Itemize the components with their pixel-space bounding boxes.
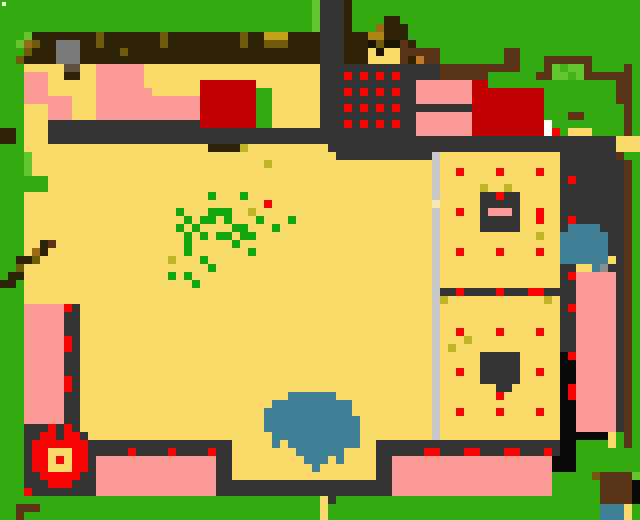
tile-amber: [376, 24, 384, 32]
tile-sand: [144, 72, 320, 80]
tile-grass: [0, 120, 24, 128]
tile-grass: [632, 504, 640, 512]
tile-red-building: [200, 104, 256, 112]
tile-tree-canopy: [288, 32, 320, 40]
tile-sand: [616, 136, 640, 144]
tile-dark-path: [616, 384, 624, 392]
tile-sand: [48, 80, 96, 88]
tile-dark-path: [24, 432, 40, 440]
tile-grass: [0, 72, 24, 80]
tile-dark-path: [480, 224, 520, 232]
tile-gray-path: [432, 376, 440, 384]
tile-trunk-fence: [624, 352, 632, 360]
tile-red-marker: [64, 376, 72, 384]
tile-sprout: [200, 232, 208, 240]
tile-sand: [576, 264, 592, 272]
tile-dark-path: [320, 16, 344, 24]
tile-sand: [248, 144, 328, 152]
tile-sand: [80, 352, 432, 360]
tile-dark-path: [88, 456, 96, 464]
tile-sand: [464, 328, 496, 336]
tile-sand: [48, 448, 72, 456]
tile-grass: [632, 512, 640, 520]
tile-grass: [0, 456, 24, 464]
tile-pink-building: [24, 344, 64, 352]
tile-grass: [632, 288, 640, 296]
tile-red-marker: [56, 456, 64, 464]
tile-red-marker: [536, 208, 544, 216]
tile-sprout: [232, 240, 240, 248]
tile-sand: [360, 424, 432, 432]
tile-grass: [0, 384, 24, 392]
tile-black-path: [560, 408, 576, 416]
tile-pond-water: [312, 464, 320, 472]
tile-black-path: [560, 432, 608, 440]
tile-sand: [72, 96, 96, 104]
tile-sand: [24, 104, 48, 112]
tile-sand: [624, 512, 632, 520]
tile-trunk-fence: [624, 168, 632, 176]
tile-tree-canopy: [24, 56, 56, 64]
tile-sand: [232, 440, 272, 448]
tile-rock: [56, 40, 80, 48]
tile-sand: [440, 240, 560, 248]
tile-dark-path: [616, 304, 624, 312]
tile-sand: [88, 432, 272, 440]
tile-grass: [576, 464, 640, 472]
tile-tree-canopy: [384, 24, 408, 32]
tile-sand: [440, 160, 560, 168]
game-map-screenshot: [0, 0, 640, 520]
tile-red-marker: [32, 456, 48, 464]
tile-sand: [24, 264, 208, 272]
tile-black-path: [560, 416, 576, 424]
tile-dark-path: [560, 272, 568, 280]
tile-pond-water: [264, 408, 352, 416]
tile-sand: [456, 344, 560, 352]
tile-dark-path: [352, 120, 360, 128]
tile-grass: [576, 440, 608, 448]
tile-dark-path: [400, 88, 416, 96]
tile-sprout: [224, 216, 232, 224]
tile-pink-building: [24, 312, 64, 320]
tile-sand: [192, 216, 200, 224]
tile-red-marker: [208, 448, 216, 456]
tile-grass: [0, 96, 24, 104]
tile-grass: [632, 72, 640, 80]
tile-pond-water: [560, 232, 608, 240]
tile-pink-building: [416, 112, 472, 120]
tile-sand: [216, 264, 432, 272]
tile-red-marker: [568, 272, 576, 280]
tile-sand: [520, 376, 560, 384]
tile-dark-path: [320, 0, 344, 8]
tile-sand: [520, 208, 536, 216]
tile-grass: [256, 120, 272, 128]
tile-sand: [80, 320, 432, 328]
tile-sand: [336, 392, 432, 400]
tile-trunk-fence: [544, 56, 592, 64]
tile-grass: [256, 104, 272, 112]
tile-sand: [32, 168, 432, 176]
tile-dark-path: [64, 360, 80, 368]
tile-grass: [0, 184, 48, 192]
tile-sand: [384, 48, 400, 56]
tile-sand: [352, 400, 432, 408]
tile-sand: [440, 208, 456, 216]
tile-trunk-fence: [624, 256, 632, 264]
tile-rock: [56, 56, 80, 64]
tile-gray-path: [432, 336, 440, 344]
tile-trunk-fence: [504, 48, 520, 56]
tile-trunk-fence: [600, 496, 632, 504]
tile-gold-patch: [264, 32, 288, 40]
tile-trunk-fence: [624, 368, 632, 376]
tile-grass: [0, 288, 24, 296]
tile-sprout: [176, 224, 184, 232]
tile-tree-canopy: [288, 40, 320, 48]
tile-sprout: [208, 264, 216, 272]
tile-red-marker: [344, 120, 352, 128]
tile-trunk-fence: [624, 200, 632, 208]
tile-sand: [296, 216, 432, 224]
tile-dark-path: [560, 264, 576, 272]
tile-red-marker: [568, 392, 576, 400]
tile-red-marker: [496, 408, 504, 416]
tile-grass: [632, 224, 640, 232]
tile-sand: [440, 152, 560, 160]
tile-tree-canopy: [80, 40, 96, 48]
tile-sand: [440, 176, 560, 184]
tile-dark-path: [384, 88, 392, 96]
tile-pink-building: [96, 88, 152, 96]
tile-pond-water: [272, 432, 360, 440]
tile-sprout: [232, 224, 248, 232]
tile-sand: [440, 224, 480, 232]
tile-grass: [552, 488, 600, 496]
tile-sand: [608, 432, 616, 440]
tile-dark-path: [320, 88, 344, 96]
tile-pink-building: [96, 488, 216, 496]
tile-red-marker: [536, 168, 544, 176]
tile-dark-path: [80, 432, 88, 440]
tile-trunk-fence: [48, 240, 56, 248]
tile-grass: [0, 408, 24, 416]
tile-red-marker: [496, 328, 504, 336]
tile-dark-path: [64, 368, 80, 376]
tile-pink-building: [576, 328, 616, 336]
tile-sand: [440, 272, 560, 280]
tile-pink-building: [24, 336, 64, 344]
tile-grass: [632, 240, 640, 248]
tile-sand: [544, 368, 560, 376]
tile-sand: [40, 256, 168, 264]
tile-trunk-fence: [624, 224, 632, 232]
tile-light-grass: [312, 16, 320, 24]
tile-pink-building: [416, 96, 472, 104]
tile-red-marker: [456, 408, 464, 416]
tile-grass: [576, 456, 640, 464]
tile-grass: [256, 88, 272, 96]
tile-red-marker: [264, 200, 272, 208]
tile-sand: [552, 296, 560, 304]
tile-grass: [0, 208, 24, 216]
tile-gray-path: [432, 368, 440, 376]
tile-red-marker: [464, 448, 480, 456]
tile-tree-canopy: [384, 16, 400, 24]
tile-dark-path: [24, 448, 32, 456]
tile-trunk-fence: [624, 424, 632, 432]
tile-pink-building: [96, 96, 200, 104]
tile-red-marker: [360, 104, 368, 112]
tile-pink-building: [392, 464, 552, 472]
tile-red-marker: [64, 384, 72, 392]
tile-sand: [256, 248, 432, 256]
tile-sand: [24, 208, 176, 216]
tile-grass: [0, 296, 24, 304]
tile-trunk-fence: [624, 280, 632, 288]
tile-grass: [0, 16, 312, 24]
tile-trunk-fence: [16, 504, 40, 512]
tile-grass: [0, 496, 320, 504]
tile-grass: [0, 360, 24, 368]
tile-gray-path: [432, 328, 440, 336]
tile-sand: [192, 240, 232, 248]
tile-pink-building: [416, 88, 472, 96]
tile-pond-water: [288, 440, 360, 448]
tile-red-marker: [376, 120, 384, 128]
tile-red-marker: [568, 216, 576, 224]
tile-trunk-fence: [600, 480, 632, 488]
tile-trunk-fence: [624, 288, 632, 296]
tile-pink-building: [392, 472, 552, 480]
tile-gray-path: [432, 416, 440, 424]
tile-dark-path: [216, 448, 232, 456]
tile-grass: [632, 360, 640, 368]
tile-red-marker: [536, 328, 544, 336]
tile-dark-path: [32, 488, 96, 496]
tile-dark-path: [320, 64, 440, 72]
tile-sand: [544, 328, 560, 336]
tile-grass: [0, 104, 24, 112]
tile-gray-path: [432, 168, 440, 176]
tile-dark-path: [88, 448, 128, 456]
tile-pink-building: [24, 80, 48, 88]
tile-dark-path: [440, 448, 464, 456]
tile-sand: [616, 144, 640, 152]
tile-grass: [0, 392, 24, 400]
tile-trunk-fence: [616, 80, 632, 88]
tile-grass: [632, 184, 640, 192]
tile-grass: [0, 248, 24, 256]
tile-sand: [24, 120, 48, 128]
tile-tree-canopy: [344, 16, 352, 24]
tile-grass: [0, 376, 24, 384]
tile-tree-canopy: [104, 32, 160, 40]
tile-light-grass: [552, 64, 560, 72]
tile-red-marker: [456, 208, 464, 216]
tile-tree-canopy: [168, 40, 240, 48]
tile-grass: [0, 368, 24, 376]
tile-pink-building: [24, 392, 64, 400]
tile-tree-canopy: [80, 48, 120, 56]
island-map[interactable]: [0, 0, 640, 520]
tile-red-marker: [344, 72, 352, 80]
tile-trunk-fence: [624, 232, 632, 240]
tile-dark-path: [616, 352, 624, 360]
tile-grass: [632, 424, 640, 432]
tile-black-path: [560, 424, 576, 432]
tile-sprout: [216, 232, 232, 240]
tile-red-marker: [456, 288, 464, 296]
tile-dark-path: [56, 424, 64, 432]
tile-red-marker: [376, 104, 384, 112]
tile-trunk-fence: [536, 72, 552, 80]
tile-sand: [80, 312, 432, 320]
tile-red-marker: [360, 88, 368, 96]
tile-red-marker: [40, 472, 80, 480]
tile-tree-canopy: [40, 248, 48, 256]
tile-grass: [632, 248, 640, 256]
tile-gray-path: [432, 208, 440, 216]
tile-red-marker: [344, 88, 352, 96]
tile-sand: [48, 456, 56, 464]
tile-grass: [632, 384, 640, 392]
tile-tree-canopy: [80, 56, 320, 64]
tile-sand: [240, 240, 432, 248]
tile-grass: [0, 144, 24, 152]
tile-red-marker: [64, 432, 80, 440]
tile-sand: [440, 304, 560, 312]
tile-dark-path: [616, 360, 624, 368]
tile-grass: [352, 24, 376, 32]
tile-sand: [624, 504, 632, 512]
tile-grass: [592, 128, 624, 136]
tile-grass: [520, 48, 640, 56]
tile-sand: [144, 80, 200, 88]
tile-dark-path: [320, 112, 416, 120]
tile-dark-path: [376, 448, 424, 456]
tile-grass: [0, 216, 24, 224]
tile-sand: [24, 232, 184, 240]
tile-grass: [632, 96, 640, 104]
tile-dark-path: [608, 232, 624, 240]
tile-dark-path: [320, 8, 344, 16]
tile-grass: [632, 376, 640, 384]
tile-dark-path: [560, 152, 616, 160]
tile-dark-path: [616, 400, 624, 408]
tile-red-marker: [72, 456, 88, 464]
tile-black-path: [560, 400, 576, 408]
tile-gray-path: [432, 352, 440, 360]
tile-rock-base: [64, 64, 80, 72]
tile-pink-building: [96, 64, 144, 72]
tile-sand: [520, 200, 560, 208]
tile-red-marker: [64, 336, 72, 344]
tile-sprout: [192, 224, 200, 232]
tile-trunk-fence: [504, 56, 520, 64]
tile-trunk-fence: [624, 440, 632, 448]
tile-sand: [464, 248, 496, 256]
tile-dark-path: [560, 328, 576, 336]
tile-gray-path: [432, 320, 440, 328]
tile-yellow-dot: [240, 144, 248, 152]
tile-sprout: [200, 216, 216, 224]
tile-dark-olive: [96, 40, 104, 48]
tile-sand: [256, 208, 432, 216]
tile-gray-path: [432, 312, 440, 320]
tile-pink-building: [96, 72, 144, 80]
tile-dark-path: [320, 104, 344, 112]
tile-grass: [552, 120, 624, 128]
tile-sand: [440, 232, 536, 240]
tile-grass: [40, 504, 320, 512]
tile-black-path: [560, 352, 568, 360]
tile-white-item: [544, 128, 552, 136]
tile-red-marker: [456, 328, 464, 336]
tile-sand: [440, 320, 560, 328]
tile-sand: [192, 272, 432, 280]
tile-trunk-fence: [400, 48, 440, 56]
tile-red-marker: [544, 448, 552, 456]
tile-red-marker: [32, 448, 48, 456]
tile-sand: [320, 512, 328, 520]
tile-grass: [0, 176, 48, 184]
tile-dark-path: [64, 408, 80, 416]
tile-trunk-fence: [624, 176, 632, 184]
tile-trunk-fence: [624, 296, 632, 304]
tile-sprout: [272, 224, 280, 232]
tile-trunk-fence: [624, 120, 632, 128]
tile-tree-canopy: [408, 40, 416, 48]
tile-sand: [440, 424, 560, 432]
tile-dark-path: [376, 456, 392, 464]
tile-dark-path: [480, 376, 520, 384]
tile-sand: [360, 440, 376, 448]
tile-sand: [216, 216, 224, 224]
tile-grass: [408, 24, 640, 32]
tile-grass: [16, 280, 24, 288]
tile-sand: [520, 368, 536, 376]
tile-grass: [0, 400, 24, 408]
tile-trunk-fence: [624, 400, 632, 408]
tile-gray-path: [432, 344, 440, 352]
tile-grass: [632, 272, 640, 280]
tile-dark-path: [320, 24, 344, 32]
tile-gray-path: [432, 272, 440, 280]
tile-trunk-fence: [616, 88, 632, 96]
tile-dark-path: [400, 120, 416, 128]
tile-sand: [368, 48, 376, 56]
tile-red-building: [472, 104, 544, 112]
tile-dark-path: [560, 200, 624, 208]
tile-pink-building: [576, 336, 616, 344]
tile-grass: [632, 432, 640, 440]
tile-sand: [72, 112, 96, 120]
tile-dark-path: [64, 352, 80, 360]
tile-grass: [0, 448, 24, 456]
tile-sand: [512, 384, 560, 392]
tile-red-marker: [456, 368, 464, 376]
tile-dark-path: [560, 280, 576, 288]
tile-red-marker: [456, 248, 464, 256]
tile-pink-building: [576, 408, 616, 416]
tile-black-path: [632, 480, 640, 488]
tile-trunk-fence: [624, 184, 632, 192]
tile-light-grass: [312, 24, 320, 32]
tile-pink-building: [96, 472, 216, 480]
tile-red-marker: [392, 88, 400, 96]
